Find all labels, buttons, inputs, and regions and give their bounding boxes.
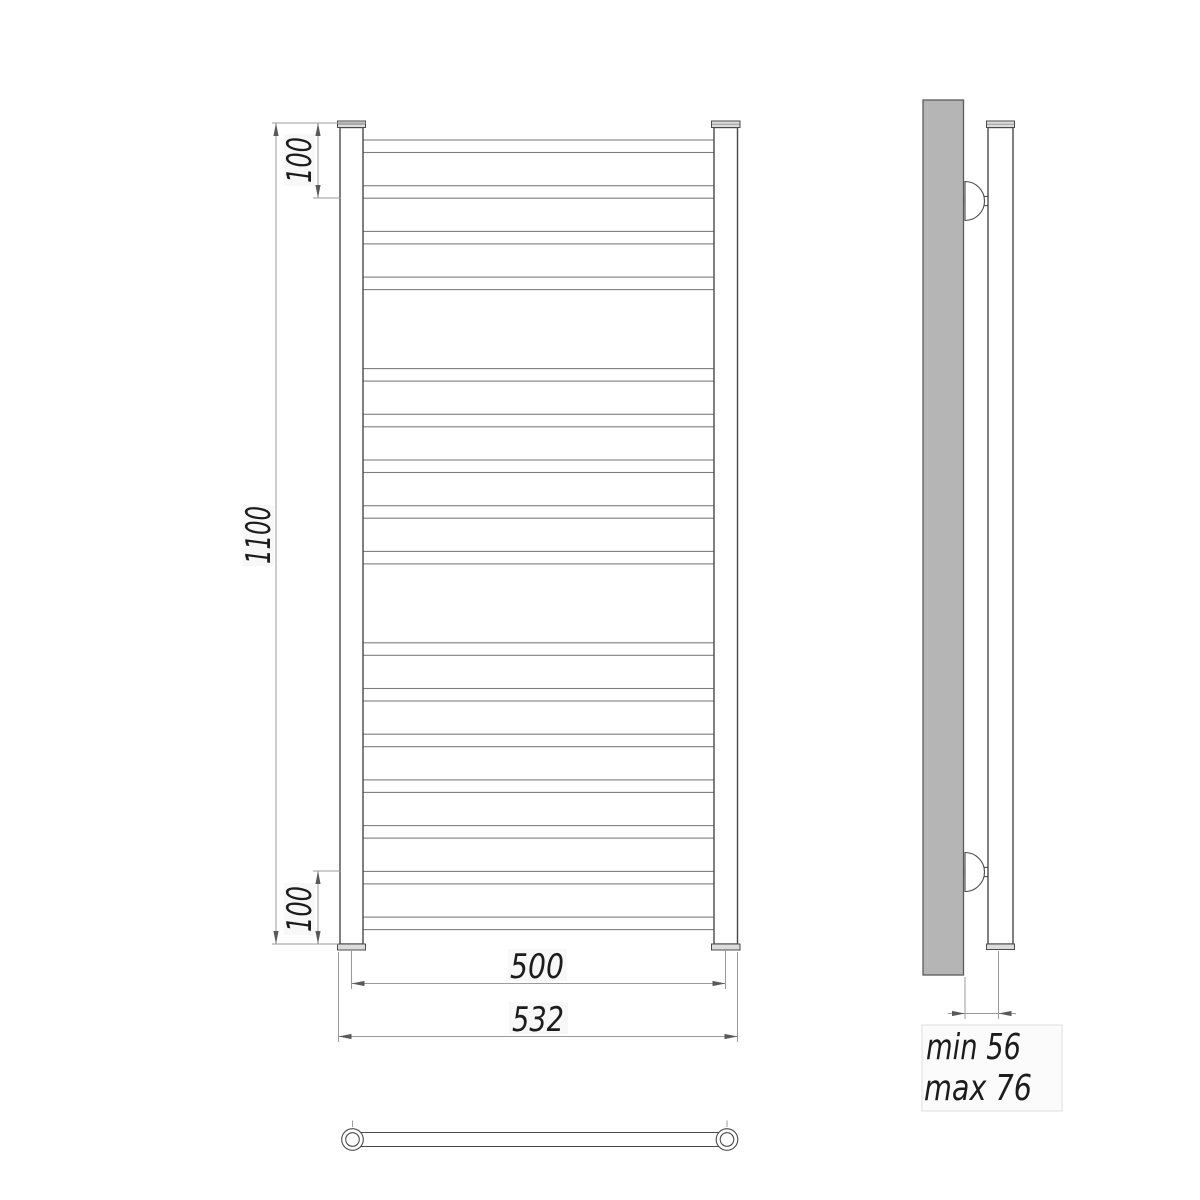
arrowhead — [315, 185, 320, 198]
right-post-section-inner — [720, 1133, 734, 1147]
drawing-page: 1100 100 100 500 532 — [0, 0, 1200, 1200]
arrowhead — [315, 123, 320, 136]
rung — [363, 140, 714, 153]
arrowhead — [315, 871, 320, 884]
rungs — [363, 140, 714, 930]
bracket-dome — [965, 182, 985, 221]
arrowhead — [339, 1034, 352, 1039]
arrowhead — [273, 123, 278, 136]
rung — [363, 780, 714, 793]
rung — [363, 734, 714, 747]
dim-label-1100: 1100 — [239, 506, 279, 564]
rung — [363, 551, 714, 564]
bottom-view — [342, 1121, 738, 1151]
rung — [363, 277, 714, 290]
rung — [363, 871, 714, 884]
drawing-canvas: 1100 100 100 500 532 — [0, 0, 1200, 1200]
rung — [363, 689, 714, 702]
rung — [363, 460, 714, 473]
front-right-post — [714, 128, 738, 945]
wall-section — [923, 100, 964, 975]
bracket-dome — [965, 853, 985, 892]
rung — [363, 506, 714, 519]
front-left-post — [340, 128, 363, 945]
rung — [363, 643, 714, 656]
dim-label-100-bottom: 100 — [280, 886, 320, 932]
rung — [363, 369, 714, 382]
rung — [363, 826, 714, 839]
arrowhead — [352, 981, 365, 986]
front-view — [338, 121, 741, 950]
arrowhead — [952, 1011, 965, 1016]
side-post — [988, 128, 1013, 945]
left-post-section-inner — [346, 1133, 360, 1147]
wall-bracket-top — [965, 182, 989, 221]
dim-label-532: 532 — [512, 1000, 564, 1040]
rung — [363, 414, 714, 427]
dim-label-500: 500 — [510, 947, 564, 987]
rung — [363, 231, 714, 244]
front-left-bottom-cap — [338, 944, 366, 950]
arrowhead — [725, 1034, 738, 1039]
front-dimensions: 1100 100 100 500 532 — [239, 123, 738, 1042]
arrowhead — [999, 1011, 1012, 1016]
wall-bracket-bottom — [965, 853, 989, 892]
side-view: min 56 max 76 — [922, 100, 1062, 1111]
rung — [363, 917, 714, 930]
dim-label-max: max 76 — [924, 1068, 1032, 1109]
front-right-bottom-cap — [712, 944, 741, 950]
arrowhead — [713, 981, 726, 986]
arrowhead — [273, 931, 278, 944]
dim-label-100-top: 100 — [280, 137, 320, 183]
rung — [363, 186, 714, 199]
side-bottom-cap — [987, 944, 1015, 950]
dim-label-min: min 56 — [926, 1027, 1021, 1068]
